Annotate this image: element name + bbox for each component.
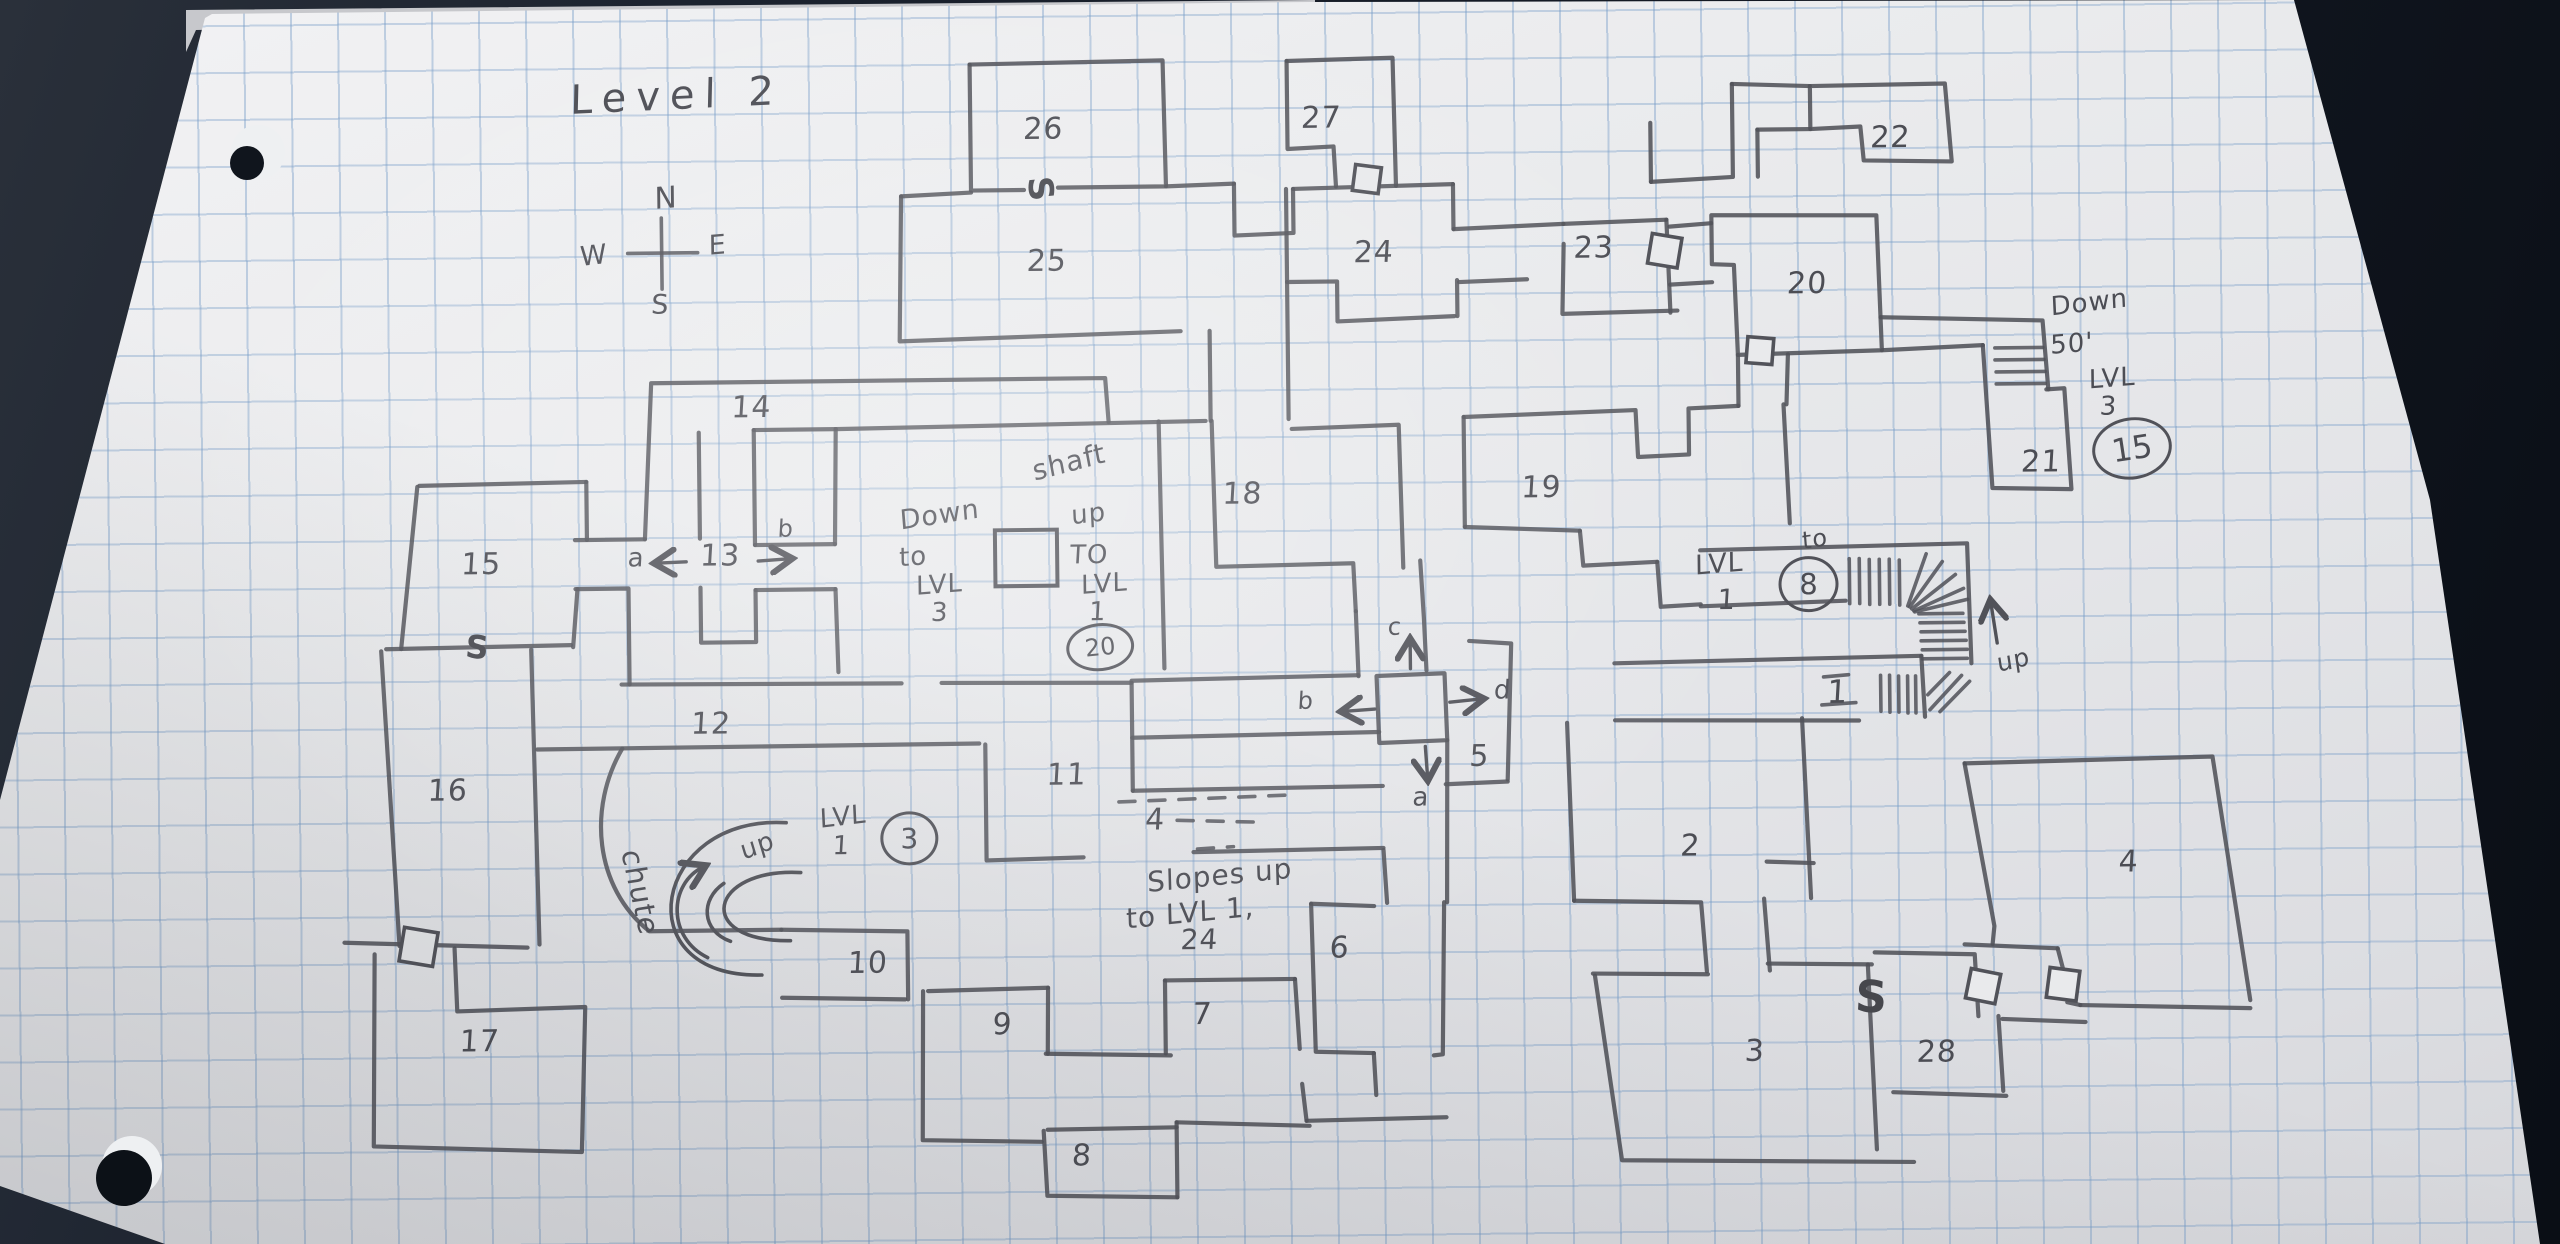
wall-line bbox=[756, 589, 836, 590]
wall-line bbox=[572, 589, 578, 647]
wall-line bbox=[928, 988, 1048, 991]
arrow-icon bbox=[1425, 746, 1427, 778]
wall-line bbox=[970, 64, 1024, 191]
annotation-label: LVL bbox=[1695, 549, 1744, 580]
slope-dash-icon bbox=[1177, 819, 1265, 823]
wall-line bbox=[1650, 84, 1733, 182]
stairs-hatch-icon bbox=[1859, 559, 1860, 604]
annotation-label: 1 bbox=[1088, 599, 1107, 625]
annotation-label: 3 bbox=[930, 600, 949, 626]
wall-line bbox=[836, 589, 839, 672]
wall-line bbox=[1768, 962, 1872, 965]
wall-line bbox=[622, 681, 902, 686]
wall-line bbox=[1384, 850, 1388, 903]
wall-line bbox=[1650, 123, 1651, 182]
wall-line bbox=[1432, 902, 1446, 1055]
wall-line bbox=[1738, 355, 1739, 406]
slope-dash-icon bbox=[1119, 795, 1289, 802]
wall-line bbox=[1453, 224, 1563, 229]
slope-dash-icon bbox=[1197, 847, 1233, 849]
annotation-label: W bbox=[579, 241, 608, 271]
stairs-hatch-icon bbox=[1879, 559, 1880, 604]
annotation-label: a bbox=[627, 545, 645, 571]
wall-line bbox=[2002, 1018, 2085, 1023]
door-icon bbox=[1647, 233, 1681, 267]
room-label-8: 8 bbox=[1071, 1141, 1093, 1171]
wall-line bbox=[699, 433, 700, 539]
wall-line bbox=[782, 996, 905, 1000]
wall-line bbox=[970, 60, 1166, 188]
annotation-label: LVL bbox=[819, 801, 867, 832]
shaft-square-icon bbox=[995, 530, 1058, 587]
annotation-label: a bbox=[1412, 784, 1430, 810]
door-icon bbox=[1352, 165, 1381, 194]
room-label-22: 22 bbox=[1869, 123, 1911, 153]
room-label-13: 13 bbox=[699, 541, 741, 571]
dungeon-walls-svg bbox=[0, 0, 2560, 1244]
room-label-7: 7 bbox=[1191, 1000, 1213, 1030]
annotation-label: 1 bbox=[1826, 676, 1849, 708]
wall-line bbox=[1574, 899, 1707, 972]
room-label-11: 11 bbox=[1046, 760, 1088, 790]
room-label-14: 14 bbox=[730, 393, 772, 423]
wall-line bbox=[381, 651, 399, 946]
wall-line bbox=[399, 487, 419, 649]
wall-line bbox=[942, 681, 1132, 685]
wall-line bbox=[1307, 1117, 1447, 1121]
stairs-hatch-icon bbox=[1996, 371, 2045, 372]
annotation-label: b bbox=[777, 517, 795, 541]
wall-line bbox=[1880, 315, 2048, 391]
punch-hole-inner bbox=[230, 146, 264, 180]
arrow-icon bbox=[1991, 602, 1997, 643]
room-label-26: 26 bbox=[1022, 115, 1064, 145]
wall-line bbox=[531, 650, 539, 945]
room-label-15: 15 bbox=[460, 550, 502, 580]
wall-line bbox=[1465, 526, 1580, 532]
wall-line bbox=[781, 928, 908, 1000]
wall-line bbox=[1295, 979, 1300, 1049]
door-icon bbox=[2046, 967, 2080, 1001]
annotation-label: LVL bbox=[1081, 569, 1128, 599]
wall-line bbox=[1875, 951, 1979, 1017]
room-label-24: 24 bbox=[1353, 238, 1395, 268]
room-label-16: 16 bbox=[427, 776, 469, 806]
wall-line bbox=[1165, 980, 1166, 1053]
secret-door-marker: S bbox=[1854, 971, 1889, 1024]
wall-line bbox=[1965, 756, 2251, 1003]
room-label-17: 17 bbox=[459, 1027, 501, 1057]
wall-line bbox=[1464, 417, 1465, 527]
room-label-27: 27 bbox=[1300, 103, 1342, 133]
annotation-label: d bbox=[1493, 677, 1512, 703]
wall-line bbox=[1311, 903, 1374, 907]
wall-line bbox=[1802, 718, 1811, 898]
wall-line bbox=[1893, 1091, 2006, 1097]
arrow-icon bbox=[1450, 699, 1482, 702]
wall-line bbox=[1212, 419, 1356, 613]
wall-line bbox=[1464, 406, 1740, 459]
arrow-icon bbox=[1343, 709, 1375, 711]
wall-line bbox=[1044, 1129, 1178, 1199]
wall-line bbox=[1374, 1053, 1376, 1095]
wall-line bbox=[586, 482, 587, 540]
annotation-label: up bbox=[1995, 644, 2032, 676]
wall-line bbox=[1757, 130, 1758, 177]
wall-line bbox=[754, 429, 836, 430]
room-label-21: 21 bbox=[2020, 447, 2062, 477]
wall-line bbox=[1132, 732, 1379, 738]
annotation-label: b bbox=[1297, 689, 1315, 713]
wall-line bbox=[1921, 656, 1925, 717]
paper-tilt-wrapper: Level 2 26272524232220211819151617121314… bbox=[0, 0, 2560, 1244]
wall-line bbox=[1563, 220, 1666, 224]
wall-line bbox=[1732, 83, 1810, 87]
stairs-hatch-icon bbox=[1922, 649, 1967, 650]
wall-line bbox=[1998, 1016, 2003, 1091]
room-label-9: 9 bbox=[992, 1010, 1014, 1040]
wall-line bbox=[834, 429, 837, 544]
wall-line bbox=[1177, 1122, 1178, 1197]
wall-line bbox=[1669, 223, 1711, 226]
annotation-label: 24 bbox=[1180, 926, 1219, 954]
chute-curve-icon bbox=[707, 883, 731, 941]
stairs-hatch-icon bbox=[1922, 658, 1967, 659]
wall-line bbox=[1420, 560, 1426, 670]
wall-line bbox=[1593, 972, 1708, 975]
wall-line bbox=[1786, 354, 1789, 404]
room-label-19: 19 bbox=[1520, 473, 1562, 503]
annotation-label: 50' bbox=[2050, 329, 2093, 359]
wall-line bbox=[575, 588, 629, 685]
stairs-hatch-icon bbox=[1995, 359, 2044, 360]
room-label-2: 2 bbox=[1680, 831, 1702, 861]
arrow-icon bbox=[758, 559, 790, 561]
room-label-18: 18 bbox=[1221, 479, 1263, 509]
room-label-10: 10 bbox=[847, 949, 889, 979]
wall-line bbox=[1048, 1127, 1177, 1129]
wall-line bbox=[1459, 279, 1527, 282]
annotation-label: 1 bbox=[832, 833, 851, 859]
door-icon bbox=[1965, 968, 2000, 1003]
annotation-label: E bbox=[708, 231, 726, 260]
wall-line bbox=[1132, 675, 1359, 681]
wall-line bbox=[1446, 782, 1508, 785]
wall-line bbox=[1166, 184, 1234, 187]
wall-line bbox=[2058, 948, 2063, 968]
door-icon bbox=[1746, 337, 1774, 365]
room-label-4: 4 bbox=[2118, 847, 2140, 877]
wall-line bbox=[1670, 282, 1712, 284]
wall-line bbox=[836, 421, 1206, 429]
wall-line bbox=[700, 587, 756, 643]
wall-line bbox=[1567, 723, 1574, 901]
secret-door-marker: S bbox=[1019, 175, 1061, 203]
wall-line bbox=[1159, 421, 1165, 668]
wall-line bbox=[1165, 979, 1295, 980]
wall-line bbox=[1614, 656, 1921, 663]
annotation-label: up bbox=[1071, 499, 1107, 529]
pencil-drawing-layer: Level 2 26272524232220211819151617121314… bbox=[0, 0, 2560, 1244]
wall-line bbox=[1882, 345, 1983, 350]
wall-line bbox=[1965, 943, 2058, 949]
wall-line bbox=[2080, 1003, 2250, 1010]
wall-line bbox=[1965, 763, 1995, 944]
stairs-hatch-icon bbox=[628, 253, 698, 254]
room-label-20: 20 bbox=[1786, 269, 1828, 299]
annotation-label: to bbox=[899, 543, 927, 571]
annotation-label: 3 bbox=[2099, 394, 2118, 420]
wall-line bbox=[1287, 282, 1289, 419]
page-title: Level 2 bbox=[570, 71, 784, 121]
annotation-label: c bbox=[1387, 615, 1403, 639]
wall-line bbox=[1133, 786, 1383, 791]
room-label-25: 25 bbox=[1026, 246, 1068, 276]
wall-line bbox=[755, 544, 835, 545]
annotation-label: S bbox=[650, 291, 670, 318]
wall-line bbox=[1047, 988, 1049, 1054]
stairs-hatch-icon bbox=[1995, 347, 2043, 348]
wall-line bbox=[1445, 740, 1449, 902]
wall-line bbox=[1292, 425, 1404, 569]
annotation-label: to bbox=[1801, 525, 1829, 553]
annotation-label: 1 bbox=[1716, 586, 1736, 614]
wall-line bbox=[1453, 184, 1454, 229]
room-label-23: 23 bbox=[1573, 233, 1615, 263]
stairs-hatch-icon bbox=[1889, 559, 1890, 604]
wall-line bbox=[1177, 1121, 1310, 1128]
annotation-label: N bbox=[654, 183, 678, 215]
annotation-label: LVL bbox=[2089, 364, 2136, 394]
wall-line bbox=[1356, 611, 1359, 676]
wall-line bbox=[1311, 903, 1374, 1054]
stairs-hatch-icon bbox=[1849, 559, 1850, 604]
wall-line bbox=[1757, 129, 1810, 130]
wall-line bbox=[754, 430, 755, 545]
wall-line bbox=[1377, 673, 1448, 743]
arrow-icon bbox=[656, 562, 686, 563]
graph-paper: Level 2 26272524232220211819151617121314… bbox=[0, 0, 2560, 1244]
annotation-label: TO bbox=[1069, 542, 1109, 568]
secret-door-marker: S bbox=[464, 627, 490, 667]
wall-line bbox=[921, 990, 1042, 1143]
wall-line bbox=[1302, 1084, 1306, 1121]
room-label-28: 28 bbox=[1916, 1037, 1958, 1067]
room-label-12: 12 bbox=[690, 709, 732, 739]
wall-line bbox=[1764, 899, 1770, 971]
wall-line bbox=[1767, 861, 1814, 864]
punch-hole-inner bbox=[96, 1150, 152, 1206]
stairs-hatch-icon bbox=[1899, 560, 1900, 605]
stairs-hatch-icon bbox=[1869, 559, 1870, 604]
wall-line bbox=[1580, 530, 1657, 566]
wall-line bbox=[1046, 1052, 1171, 1056]
annotation-label: LVL bbox=[916, 570, 963, 600]
wall-line bbox=[1615, 718, 1859, 724]
room-label-3: 3 bbox=[1744, 1037, 1766, 1067]
wall-line bbox=[1783, 404, 1789, 523]
stairs-hatch-icon bbox=[1921, 640, 1966, 641]
wall-line bbox=[901, 193, 971, 197]
annotation-label: 4 bbox=[1144, 805, 1166, 835]
wall-line bbox=[537, 744, 979, 750]
photo-scene: Level 2 26272524232220211819151617121314… bbox=[0, 0, 2560, 1244]
room-label-5: 5 bbox=[1469, 742, 1491, 772]
wall-line bbox=[419, 482, 586, 486]
room-label-6: 6 bbox=[1329, 933, 1351, 963]
wall-line bbox=[1210, 331, 1211, 421]
stairs-hatch-icon bbox=[1996, 383, 2045, 384]
door-icon bbox=[399, 927, 438, 966]
